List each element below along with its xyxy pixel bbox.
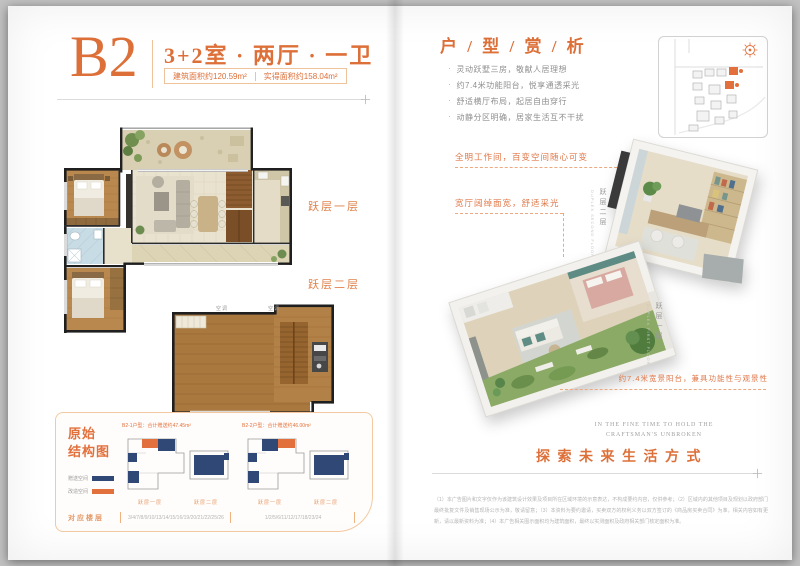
leader-line-living-h <box>455 213 563 214</box>
annotation-living: 宽厅阔绰面宽，舒适采光 <box>455 197 560 209</box>
brochure-page: B2 3+2室 · 两厅 · 一卫 建筑面积约120.59m² 实得面积约158… <box>0 0 800 566</box>
diagram2-image <box>238 433 350 497</box>
floors-label: 对应楼层 <box>68 513 104 523</box>
area-divider <box>255 72 256 81</box>
diagram1-image <box>118 433 230 497</box>
structure-title-line2: 结构图 <box>68 444 110 459</box>
duplex1-cn-label: 跃层一层 <box>653 302 663 342</box>
feature-bullet: 动静分区明确，居家生活互不干扰 <box>448 112 584 128</box>
plan2-note-1: 空调 <box>216 305 228 312</box>
area-actual-label: 实得面积约158.04m² <box>264 71 338 82</box>
legend-label-orange: 改造空间 <box>68 488 88 495</box>
legend-swatch-orange <box>92 489 114 494</box>
duplex1-en-label: DUPLEX FIRST FLOOR <box>646 304 651 366</box>
leader-line-balcony <box>560 389 766 390</box>
legend-item-orange: 改造空间 <box>68 488 114 495</box>
right-page-title: 户 / 型 / 赏 / 析 <box>440 32 587 57</box>
siteplan-image <box>658 36 768 138</box>
annotation-balcony: 约7.4米宽景阳台，兼具功能性与观景性 <box>600 373 768 384</box>
floors-divider-2 <box>230 512 231 523</box>
feature-bullet: 灵动跃墅三房，敬献人居理想 <box>448 64 584 80</box>
left-rule-line <box>57 99 363 100</box>
annotation-workroom: 全明工作间，百变空间随心可变 <box>455 151 588 163</box>
feature-bullet: 舒适横厅布局，起居自由穿行 <box>448 96 584 112</box>
unit-name: B2 <box>70 28 138 86</box>
crosshair-icon <box>752 468 763 479</box>
compass-icon <box>743 43 758 58</box>
plan2-note-2: 空调 <box>268 305 280 312</box>
floors-list-2: 1/2/5/6/11/12/17/18/23/24 <box>234 515 352 521</box>
diagram2-label-b: 跃层二层 <box>314 499 338 506</box>
unit-spec-title: 3+2室 · 两厅 · 一卫 <box>164 38 373 70</box>
diagram1-label-a: 跃层一层 <box>138 499 162 506</box>
diagram2-label-a: 跃层一层 <box>258 499 282 506</box>
page-fold-shadow <box>386 0 404 566</box>
feature-bullet: 约7.4米功能阳台，悦享通透采光 <box>448 80 584 96</box>
original-structure-box: 原始 结构图 赠送空间 改造空间 B2-1户型：合计赠送约47.45m² B2-… <box>55 412 373 532</box>
structure-title-line1: 原始 <box>68 426 96 441</box>
floors-list-1: 3/4/7/8/9/10/13/14/15/16/19/20/21/22/25/… <box>124 515 228 521</box>
diagram1-header: B2-1户型：合计赠送约47.45m² <box>122 422 191 429</box>
english-caption-line2: CRAFTSMAN'S UNBROKEN <box>540 430 768 440</box>
area-info-box: 建筑面积约120.59m² 实得面积约158.04m² <box>164 68 347 84</box>
right-rule-line <box>432 473 756 474</box>
slogan-text: 探 索 未 来 生 活 方 式 <box>536 446 772 466</box>
header-divider <box>152 40 153 88</box>
crosshair-icon <box>360 94 371 105</box>
level1-label: 跃层一层 <box>308 198 360 214</box>
legend-label-navy: 赠送空间 <box>68 475 88 482</box>
area-build-label: 建筑面积约120.59m² <box>173 71 247 82</box>
legend-swatch-navy <box>92 476 114 481</box>
floors-divider-3 <box>354 512 355 523</box>
english-caption-line1: IN THE FINE TIME TO HOLD THE <box>540 420 768 430</box>
level2-label: 跃层二层 <box>308 276 360 292</box>
feature-bullet-list: 灵动跃墅三房，敬献人居理想 约7.4米功能阳台，悦享通透采光 舒适横厅布局，起居… <box>448 64 584 128</box>
english-caption: IN THE FINE TIME TO HOLD THE CRAFTSMAN'S… <box>540 420 768 440</box>
legend-item-navy: 赠送空间 <box>68 475 114 482</box>
structure-title: 原始 结构图 <box>68 425 110 460</box>
diagram1-label-b: 跃层二层 <box>194 499 218 506</box>
diagram2-header: B2-2户型：合计赠送约46.00m² <box>242 422 311 429</box>
floorplan-level2-image <box>168 300 338 418</box>
floors-divider-1 <box>120 512 121 523</box>
disclaimer-text: （1）本广告图片和文字仅作为该建筑设计效果及项目所在区域环境的示意表达，不构成要… <box>434 495 768 527</box>
